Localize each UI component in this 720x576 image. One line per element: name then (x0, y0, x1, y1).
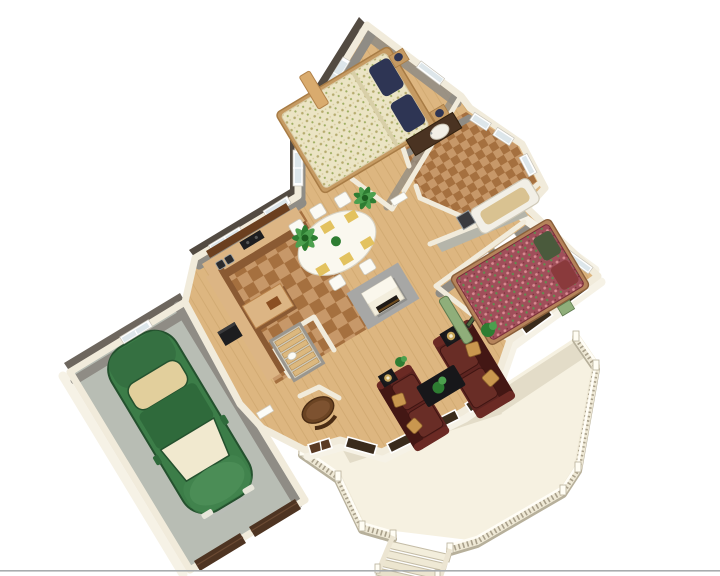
railing-post (560, 485, 566, 495)
railing-post (359, 521, 365, 531)
railing-post (593, 360, 599, 370)
railing-post (575, 462, 581, 472)
footer-divider-line (0, 570, 720, 572)
stair-post (375, 564, 380, 573)
floor-plan-svg (0, 0, 720, 576)
palm-plant (292, 225, 318, 251)
railing-post (335, 471, 341, 481)
floor-plan-render (0, 0, 720, 576)
railing-post (573, 331, 579, 341)
